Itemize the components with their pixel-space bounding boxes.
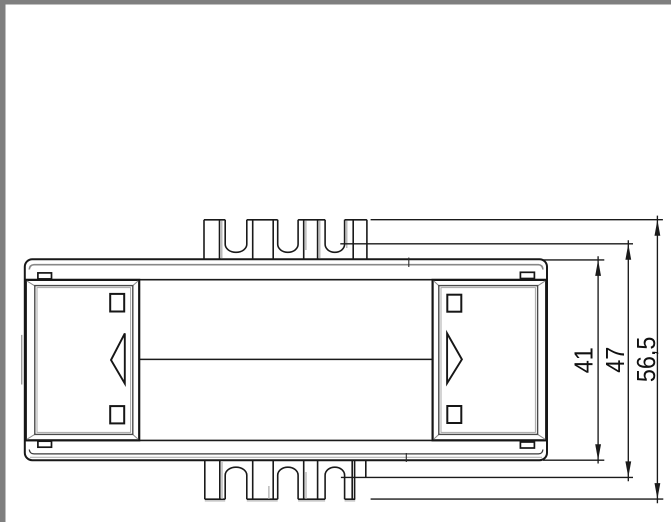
svg-text:47: 47 xyxy=(602,347,630,373)
svg-text:56,5: 56,5 xyxy=(633,337,661,383)
svg-text:41: 41 xyxy=(570,347,598,373)
